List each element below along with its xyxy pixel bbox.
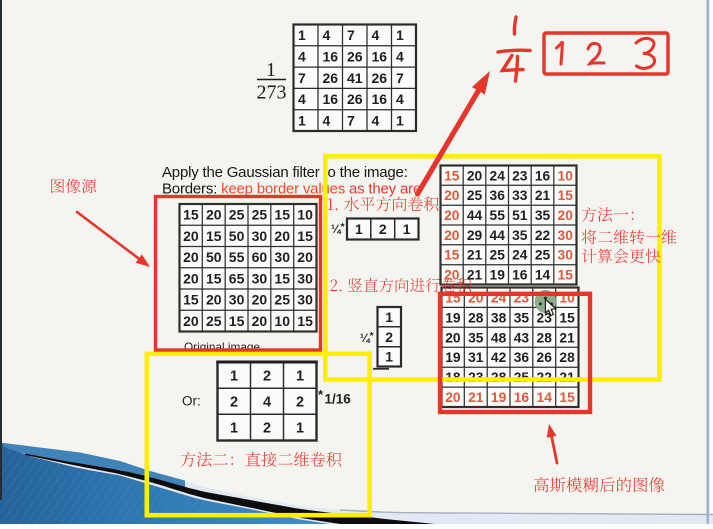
svg-text:50: 50	[206, 249, 222, 265]
svg-text:25: 25	[229, 207, 245, 223]
svg-text:4: 4	[298, 49, 306, 65]
svg-text:15: 15	[274, 207, 290, 223]
svg-text:20: 20	[206, 207, 222, 223]
svg-text:20: 20	[444, 188, 460, 203]
svg-text:1: 1	[230, 421, 238, 437]
svg-text:15: 15	[183, 292, 199, 308]
svg-text:48: 48	[491, 330, 507, 345]
svg-text:16: 16	[323, 91, 339, 107]
svg-text:4: 4	[396, 49, 404, 65]
svg-text:60: 60	[252, 249, 268, 265]
svg-text:30: 30	[558, 228, 574, 243]
svg-text:20: 20	[274, 228, 290, 244]
svg-text:44: 44	[490, 228, 506, 243]
svg-text:26: 26	[537, 350, 553, 365]
svg-text:35: 35	[512, 228, 528, 243]
svg-text:20: 20	[444, 208, 460, 223]
svg-text:21: 21	[467, 248, 483, 263]
svg-text:24: 24	[512, 248, 528, 263]
svg-text:22: 22	[535, 228, 551, 243]
svg-text:16: 16	[535, 168, 551, 183]
svg-text:273: 273	[257, 82, 287, 104]
svg-text:19: 19	[445, 350, 461, 365]
svg-text:51: 51	[512, 208, 528, 223]
svg-text:35: 35	[535, 208, 551, 223]
svg-text:25: 25	[535, 248, 551, 263]
svg-text:Or:: Or:	[182, 394, 201, 409]
svg-text:2: 2	[296, 395, 304, 411]
svg-text:26: 26	[347, 49, 363, 65]
svg-text:2: 2	[230, 395, 238, 411]
svg-text:1: 1	[355, 221, 363, 237]
svg-text:30: 30	[297, 270, 313, 286]
svg-text:15: 15	[183, 207, 199, 223]
svg-text:15: 15	[206, 228, 222, 244]
svg-text:20: 20	[252, 313, 268, 329]
svg-text:15: 15	[559, 310, 575, 325]
svg-text:15: 15	[444, 248, 460, 263]
svg-text:1: 1	[230, 368, 238, 384]
svg-text:20: 20	[252, 292, 268, 308]
svg-text:4: 4	[372, 112, 380, 128]
svg-text:15: 15	[297, 228, 313, 244]
svg-text:19: 19	[445, 310, 461, 325]
svg-text:44: 44	[467, 208, 483, 223]
svg-text:2: 2	[385, 329, 393, 345]
svg-text:15: 15	[558, 268, 574, 283]
svg-text:2: 2	[263, 368, 271, 384]
svg-text:4: 4	[396, 91, 404, 107]
svg-text:35: 35	[468, 330, 484, 345]
svg-text:25: 25	[490, 248, 506, 263]
svg-text:28: 28	[537, 330, 553, 345]
svg-text:Apply the Gaussian filter to t: Apply the Gaussian filter to the image:	[162, 164, 408, 181]
svg-text:20: 20	[183, 228, 199, 244]
svg-text:20: 20	[206, 292, 222, 308]
svg-text:20: 20	[444, 228, 460, 243]
svg-text:1: 1	[385, 309, 393, 325]
svg-text:2: 2	[379, 221, 387, 237]
svg-text:7: 7	[347, 27, 355, 43]
svg-text:16: 16	[323, 49, 339, 65]
svg-text:10: 10	[558, 168, 574, 183]
svg-text:15: 15	[558, 188, 574, 203]
svg-text:20: 20	[558, 208, 574, 223]
svg-text:7: 7	[298, 70, 306, 86]
svg-text:65: 65	[229, 270, 245, 286]
svg-text:43: 43	[514, 330, 530, 345]
svg-text:26: 26	[323, 70, 339, 86]
svg-text:41: 41	[347, 70, 363, 86]
svg-text:42: 42	[491, 350, 507, 365]
svg-text:23: 23	[512, 168, 528, 183]
svg-text:15: 15	[229, 313, 245, 329]
svg-text:4: 4	[372, 27, 380, 43]
svg-text:21: 21	[467, 268, 483, 283]
svg-text:20: 20	[444, 268, 460, 283]
svg-text:10: 10	[297, 207, 313, 223]
svg-text:26: 26	[347, 91, 363, 107]
svg-text:24: 24	[490, 168, 506, 183]
svg-text:21: 21	[468, 390, 484, 405]
svg-text:26: 26	[372, 70, 388, 86]
svg-text:29: 29	[467, 228, 483, 243]
svg-text:30: 30	[252, 228, 268, 244]
svg-text:20: 20	[445, 330, 461, 345]
svg-text:2: 2	[263, 421, 271, 437]
svg-text:20: 20	[297, 249, 313, 265]
svg-text:1: 1	[403, 221, 411, 237]
svg-text:20: 20	[445, 390, 461, 405]
svg-text:16: 16	[372, 49, 388, 65]
svg-text:25: 25	[206, 313, 222, 329]
svg-text:15: 15	[444, 168, 460, 183]
svg-text:19: 19	[490, 268, 506, 283]
svg-text:20: 20	[183, 313, 199, 329]
svg-text:4: 4	[323, 112, 331, 128]
svg-text:30: 30	[274, 249, 290, 265]
svg-text:15: 15	[297, 313, 313, 329]
svg-text:1: 1	[385, 349, 393, 365]
svg-text:1/16: 1/16	[325, 392, 352, 407]
svg-text:14: 14	[535, 268, 551, 283]
svg-text:16: 16	[372, 91, 388, 107]
svg-text:1: 1	[396, 112, 404, 128]
svg-text:1: 1	[298, 112, 306, 128]
svg-text:4: 4	[323, 27, 331, 43]
svg-text:33: 33	[512, 188, 528, 203]
svg-text:20: 20	[183, 270, 199, 286]
svg-text:4: 4	[298, 91, 306, 107]
svg-text:10: 10	[274, 313, 290, 329]
svg-text:19: 19	[491, 390, 507, 405]
svg-text:55: 55	[490, 208, 506, 223]
svg-text:7: 7	[396, 70, 404, 86]
svg-text:1: 1	[298, 27, 306, 43]
svg-text:20: 20	[467, 168, 483, 183]
svg-text:15: 15	[274, 270, 290, 286]
svg-text:1: 1	[296, 421, 304, 437]
svg-text:1: 1	[396, 27, 404, 43]
svg-text:55: 55	[229, 249, 245, 265]
svg-text:25: 25	[252, 207, 268, 223]
svg-text:15: 15	[559, 390, 575, 405]
svg-text:20: 20	[183, 249, 199, 265]
svg-text:50: 50	[229, 228, 245, 244]
svg-text:1: 1	[266, 59, 276, 81]
svg-text:16: 16	[514, 390, 530, 405]
svg-text:21: 21	[559, 330, 575, 345]
svg-text:25: 25	[274, 292, 290, 308]
svg-text:28: 28	[559, 350, 575, 365]
svg-text:30: 30	[252, 270, 268, 286]
svg-text:35: 35	[514, 310, 530, 325]
svg-text:1: 1	[296, 368, 304, 384]
svg-text:38: 38	[491, 310, 507, 325]
svg-text:4: 4	[263, 395, 271, 411]
svg-text:14: 14	[537, 390, 553, 405]
svg-text:36: 36	[490, 188, 506, 203]
svg-text:30: 30	[297, 292, 313, 308]
svg-text:30: 30	[558, 248, 574, 263]
svg-text:21: 21	[535, 188, 551, 203]
svg-text:36: 36	[514, 350, 530, 365]
svg-text:16: 16	[512, 268, 528, 283]
svg-text:25: 25	[467, 188, 483, 203]
svg-text:30: 30	[229, 292, 245, 308]
svg-text:15: 15	[206, 270, 222, 286]
svg-text:7: 7	[347, 112, 355, 128]
svg-text:31: 31	[468, 350, 484, 365]
svg-text:28: 28	[468, 310, 484, 325]
